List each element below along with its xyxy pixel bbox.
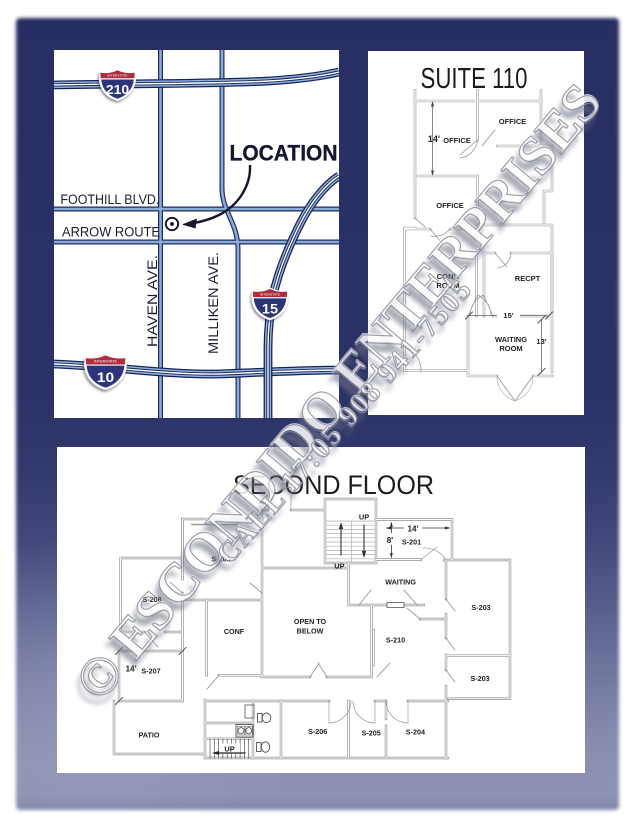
svg-text:S-205: S-205	[362, 729, 381, 738]
svg-text:OFFICE: OFFICE	[436, 201, 464, 210]
svg-text:BELOW: BELOW	[297, 627, 324, 636]
svg-text:HAVEN AVE.: HAVEN AVE.	[145, 255, 160, 347]
svg-text:8': 8'	[387, 536, 394, 545]
svg-text:S-203: S-203	[471, 603, 490, 612]
svg-text:MILLIKEN AVE.: MILLIKEN AVE.	[206, 252, 221, 354]
svg-text:UP: UP	[359, 513, 369, 522]
svg-text:S-207: S-207	[141, 667, 160, 676]
svg-text:S-208: S-208	[142, 595, 161, 604]
svg-text:S-206: S-206	[308, 727, 327, 736]
svg-text:14': 14'	[125, 665, 136, 674]
svg-text:FOOTHILL BLVD.: FOOTHILL BLVD.	[60, 192, 159, 207]
svg-text:ROOM: ROOM	[499, 344, 522, 353]
svg-text:UP: UP	[334, 562, 344, 571]
svg-text:WAITING: WAITING	[385, 578, 416, 587]
svg-text:10: 10	[97, 370, 114, 386]
svg-text:OPEN TO: OPEN TO	[294, 617, 327, 626]
svg-text:INTERSTATE: INTERSTATE	[94, 360, 118, 364]
svg-text:RECPT: RECPT	[515, 274, 541, 283]
svg-text:S-201: S-201	[402, 538, 421, 547]
svg-text:13': 13'	[536, 337, 546, 346]
svg-text:S-203: S-203	[211, 555, 230, 564]
svg-text:OFFICE: OFFICE	[443, 136, 471, 145]
svg-text:14': 14'	[407, 525, 418, 534]
svg-text:14': 14'	[428, 134, 440, 144]
svg-text:UP: UP	[224, 745, 234, 754]
svg-text:15': 15'	[503, 311, 513, 320]
svg-text:OFFICE: OFFICE	[499, 117, 527, 126]
svg-text:LOCATION: LOCATION	[230, 141, 338, 166]
svg-text:15: 15	[262, 302, 278, 318]
svg-text:WAITING: WAITING	[495, 335, 527, 344]
svg-text:SUITE 110: SUITE 110	[421, 63, 528, 95]
svg-text:210: 210	[106, 82, 129, 96]
svg-text:ROOM: ROOM	[436, 281, 459, 290]
svg-text:INTERSTATE: INTERSTATE	[108, 74, 128, 78]
svg-text:S-210: S-210	[386, 636, 405, 645]
svg-text:INTERSTATE: INTERSTATE	[260, 293, 280, 297]
svg-text:S-203: S-203	[470, 674, 489, 683]
svg-text:PATIO: PATIO	[139, 731, 160, 740]
svg-text:CONF: CONF	[224, 627, 245, 636]
svg-text:ARROW ROUTE: ARROW ROUTE	[62, 225, 160, 240]
svg-text:SECOND FLOOR: SECOND FLOOR	[233, 470, 434, 500]
svg-text:S-204: S-204	[406, 728, 425, 737]
svg-text:CONF.: CONF.	[437, 272, 460, 281]
